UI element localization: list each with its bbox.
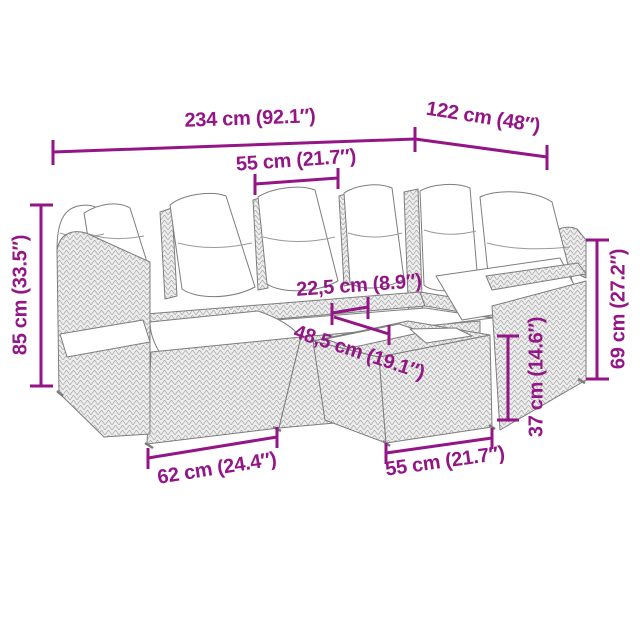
dim-line-back-height bbox=[30, 205, 53, 386]
dim-line-total-width bbox=[53, 127, 415, 165]
dim-line-total-depth bbox=[415, 139, 547, 170]
product-dimension-diagram: 234 cm (92.1″) 122 cm (48″) 55 cm (21.7″… bbox=[0, 0, 640, 640]
dim-label-arm-height: 69 cm (27.2″) bbox=[608, 249, 631, 369]
dim-label-back-height: 85 cm (33.5″) bbox=[10, 235, 33, 355]
dim-line-arm-height bbox=[586, 240, 609, 379]
dim-label-total-width: 234 cm (92.1″) bbox=[184, 105, 316, 133]
dim-label-table-height: 37 cm (14.6″) bbox=[526, 317, 549, 437]
